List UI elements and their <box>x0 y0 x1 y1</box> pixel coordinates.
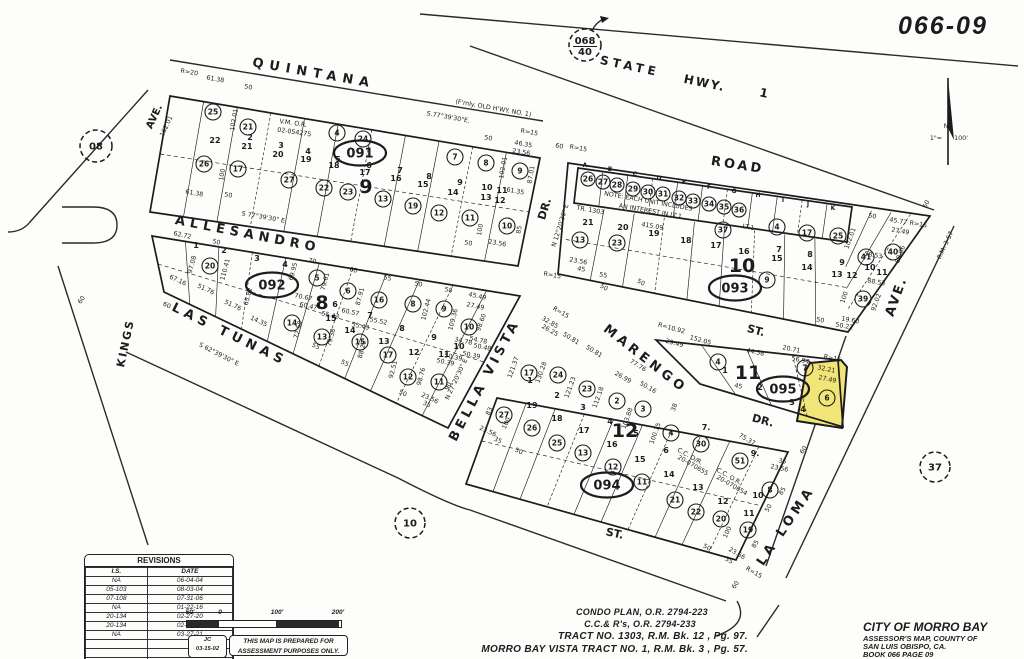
dimension-label: 70 <box>308 257 317 266</box>
revision-cell: NA <box>86 604 148 613</box>
dimension-label: 100' <box>954 135 968 142</box>
parcel-number: 23 <box>612 239 622 248</box>
scale-ticks: 50' 0 100' 200' <box>186 609 346 618</box>
lot-number: 12 <box>494 196 505 205</box>
street-bulb <box>62 207 117 243</box>
parcel-number: 24 <box>358 135 368 144</box>
parcel-number: 8 <box>410 300 415 309</box>
note-condo-plan: CONDO PLAN, O.R. 2794-223 <box>430 607 708 617</box>
street-label: DR. <box>751 411 776 429</box>
dimension-label: 60 <box>731 580 741 591</box>
lot-number: 3 <box>254 254 260 263</box>
dimension-label: 1"= <box>930 135 942 142</box>
parcel-number: 9 <box>764 276 769 285</box>
parcel-number: 9 <box>441 305 446 314</box>
parcel-number: 4 <box>715 358 720 367</box>
street-label: QUINTANA <box>251 55 376 91</box>
adjacent-page-ref: 068 <box>575 36 596 47</box>
parcel-number: 8 <box>483 159 488 168</box>
parcel-number: 2 <box>614 397 619 406</box>
parcel-number: 37 <box>718 226 728 235</box>
scale-bar-graphic <box>186 620 342 628</box>
scale-tick-100: 100' <box>271 609 283 616</box>
parcel-number: 6 <box>824 394 829 403</box>
dimension-label: 55 <box>599 271 608 279</box>
dimension-label: 45.77 <box>889 217 908 227</box>
dimension-label: 23.56 <box>512 148 531 158</box>
parcel-number: 13 <box>317 333 327 342</box>
parcel-number: 17 <box>383 351 393 360</box>
dimension-label: 55 <box>311 342 321 352</box>
dimension-label: R=15 <box>569 144 588 154</box>
lot-number: 10 <box>481 183 493 192</box>
dimension-label: 50 <box>816 316 825 324</box>
dimension-label: 50.81 <box>584 344 603 359</box>
lot-number: 18 <box>680 236 692 245</box>
unit-letter: B <box>608 166 613 173</box>
lot-number: 12 <box>846 271 857 280</box>
revision-row: 05-10308-03-04 <box>86 586 233 595</box>
lot-number: 13 <box>831 270 842 279</box>
street-label: LA LOMA <box>754 483 818 568</box>
parcel-number: 29 <box>628 185 638 194</box>
lot-number: 1 <box>722 366 728 375</box>
revision-cell: 08-03-04 <box>147 586 232 595</box>
assessor-map-page: QUINTANASTATEHWY.1ROADALLESANDROLAS TUNA… <box>0 0 1024 659</box>
block-outline <box>150 96 540 266</box>
lot-number: 2 <box>221 246 227 255</box>
dimension-label: R=20 <box>180 68 199 78</box>
block-page-number: 091 <box>346 147 373 162</box>
lot-number: 16 <box>390 174 402 183</box>
dimension-label: 50 <box>764 503 774 513</box>
parcel-number: 33 <box>688 197 698 206</box>
dimension-label: 60.57 <box>341 307 360 318</box>
lot-number: 18 <box>328 161 340 170</box>
dimension-label: 102.01 <box>229 108 240 131</box>
unit-letter: C <box>633 171 638 178</box>
dimension-label: 110.41 <box>219 258 231 281</box>
street-label: DR. <box>535 197 554 222</box>
dimension-label: 79.61 <box>320 272 331 291</box>
parcel-number: 27 <box>598 178 608 187</box>
parcel-number: 10 <box>464 323 474 332</box>
dimension-label: 87.91 <box>355 287 366 306</box>
unit-letter: J <box>806 201 809 208</box>
parcel-number: 26 <box>199 160 209 169</box>
dimension-label: 55 <box>383 274 392 283</box>
parcel-number: 15 <box>355 338 365 347</box>
lot-number: 8 <box>807 250 813 259</box>
lot-number: 20 <box>272 150 284 159</box>
dimension-label: 109.36 <box>447 308 459 331</box>
block-page-number: 093 <box>721 282 748 297</box>
parcel-number: 16 <box>374 296 384 305</box>
parcel-number: 4 <box>774 223 779 232</box>
north-arrow <box>948 78 954 165</box>
dimension-label: 23.56 <box>770 463 789 474</box>
page-number: 066-09 <box>898 12 1018 41</box>
revision-cell <box>86 649 148 658</box>
lot-number: 7 <box>367 311 373 320</box>
lot-number: 14 <box>663 470 675 479</box>
dimension-label: 97.08 <box>187 255 198 274</box>
parcel-number: 32 <box>674 194 684 203</box>
street-label: HWY. <box>683 72 728 95</box>
parcel-number: 24 <box>553 371 563 380</box>
lot-number: 20 <box>617 223 629 232</box>
parcel-number: 25 <box>833 232 843 241</box>
dimension-label: 92.02 <box>870 293 883 312</box>
parcel-number: 19 <box>408 202 418 211</box>
parcel-number: 3 <box>640 405 645 414</box>
dimension-label: 98.76 <box>416 367 427 386</box>
dimension-label: 50 <box>398 389 408 399</box>
parcel-number: 34 <box>704 200 714 209</box>
dimension-label: 27.49 <box>466 301 485 312</box>
unit-letter: E <box>682 179 686 186</box>
block-page-number: 092 <box>258 279 285 294</box>
unit-letter: K <box>831 205 836 212</box>
dimension-label: 50.48 <box>473 342 492 353</box>
dimension-label: 67.16 <box>168 274 187 288</box>
kings-ave-lower-edge <box>58 266 148 545</box>
revision-cell <box>86 640 148 649</box>
lot-number: 9 <box>431 333 437 342</box>
lot-line <box>384 135 405 246</box>
parcel-number: 20 <box>716 515 726 524</box>
dimension-label: 85 <box>778 486 788 496</box>
dimension-label: LT.1 <box>742 223 755 232</box>
lot-number: 4 <box>282 260 288 269</box>
lot-number: 12 <box>717 497 728 506</box>
dimension-label: N <box>944 123 949 130</box>
lot-number: 17 <box>578 426 589 435</box>
parcel-number: 13 <box>378 195 388 204</box>
lot-number: 19 <box>300 155 312 164</box>
lot-number: 12 <box>408 348 419 357</box>
dimension-label: 38 <box>670 403 679 413</box>
dimension-label: 27.49 <box>891 227 910 237</box>
lot-line <box>822 203 827 238</box>
note-tract-1303: TRACT NO. 1303, R.M. Bk. 12 , Pg. 97. <box>430 631 748 642</box>
street-label: ST. <box>605 525 625 541</box>
dimension-label: 50 <box>244 83 253 91</box>
lot-number: 15 <box>417 180 429 189</box>
block-number: 8 <box>315 292 328 314</box>
revision-cell: 06-04-04 <box>147 577 232 586</box>
parcel-number: 6 <box>345 287 350 296</box>
note-leader-line <box>757 605 779 637</box>
revision-cell: 07-31-06 <box>147 595 232 604</box>
lot-number: 17 <box>710 241 721 250</box>
parcel-number: 5 <box>314 274 319 283</box>
lot-number: 15 <box>325 314 337 323</box>
dimension-label: 35 <box>724 556 734 566</box>
lot-line <box>267 258 286 342</box>
dimension-label: 23.56 <box>488 239 507 249</box>
dimension-label: 50.16 <box>638 380 657 395</box>
note-morro-bay-vista-tract: MORRO BAY VISTA TRACT NO. 1, R.M. Bk. 3 … <box>400 644 748 655</box>
dimension-label: 102.01 <box>498 156 509 179</box>
lot-number: 15 <box>771 254 783 263</box>
lot-number: 21 <box>241 142 253 151</box>
dimension-label: 45 <box>577 265 586 273</box>
parcel-number: 27 <box>499 411 509 420</box>
lot-line <box>748 193 753 228</box>
scale-bar: 50' 0 100' 200' <box>186 609 346 628</box>
parcel-number: 25 <box>208 108 218 117</box>
adjacent-page-ref: 40 <box>578 47 592 58</box>
dimension-label: 121.23 <box>564 376 578 399</box>
dimension-label: 60 <box>162 301 172 311</box>
parcel-number: 8 <box>767 486 772 495</box>
dimension-label: 20.71 <box>782 344 801 355</box>
parcel-number: 9 <box>517 167 522 176</box>
dimension-label: 100 <box>722 525 733 539</box>
lot-number: 19 <box>526 401 538 410</box>
footer-city: CITY OF MORRO BAY <box>863 620 987 634</box>
revision-cell: 20-134 <box>86 622 148 631</box>
parcel-number: 31 <box>658 190 668 199</box>
scale-tick-50: 50' <box>186 609 195 616</box>
dimension-label: 26.99 <box>613 370 632 385</box>
street-label: 1 <box>758 85 769 100</box>
lot-number: 13 <box>692 483 703 492</box>
dimension-label: 100.15 <box>649 422 663 445</box>
dimension-label: 50 <box>484 134 493 142</box>
parcel-number: 12 <box>434 209 444 218</box>
dimension-label: 60 <box>349 266 358 275</box>
dimension-label: 51.76 <box>223 299 242 313</box>
parcel-number: 12 <box>403 373 413 382</box>
parcel-number: 7 <box>452 153 457 162</box>
lot-number: 9. <box>751 449 760 458</box>
lot-number: 8 <box>426 172 432 181</box>
dimension-label: 85 <box>751 539 761 549</box>
adjacent-page-ref: 08 <box>89 142 103 153</box>
parcel-number: 30 <box>643 188 653 197</box>
lot-number: 7 <box>776 245 782 254</box>
lot-number: 9 <box>457 178 463 187</box>
lot-number: 4 <box>800 405 806 414</box>
parcel-number: 13 <box>575 236 585 245</box>
scale-tick-200: 200' <box>332 609 344 616</box>
parcel-number: 25 <box>552 439 562 448</box>
parcel-number: 21 <box>670 496 680 505</box>
dimension-label: R=15 <box>744 565 763 580</box>
revisions-title: REVISIONS <box>85 555 233 567</box>
parcel-number: 11 <box>434 378 444 387</box>
lot-number: 21 <box>582 218 594 227</box>
lot-number: 10 <box>453 342 465 351</box>
dimension-label: 162.01 <box>159 115 175 138</box>
parcel-number: 4 <box>334 129 339 138</box>
adjacent-page-ref: 10 <box>403 519 417 530</box>
dimension-label: 29.49 <box>665 338 684 349</box>
lot-number: 8 <box>399 324 405 333</box>
dimension-label: R=10.92 <box>657 322 686 336</box>
lot-number: 14 <box>447 188 459 197</box>
lot-number: 3 <box>580 403 586 412</box>
dimension-label: 50 <box>464 239 473 247</box>
lot-number: 13 <box>378 337 389 346</box>
parcel-number: 26 <box>527 424 537 433</box>
unit-letter: G <box>732 188 737 195</box>
dimension-label: R.M. 3-57 <box>936 230 955 260</box>
unit-letter: H <box>755 192 760 199</box>
quintana-north-edge <box>170 60 543 121</box>
dimension-label: 14.35 <box>249 315 268 329</box>
lot-line <box>216 247 219 317</box>
parcel-number: 36 <box>734 206 744 215</box>
preparer-initials: JC <box>189 636 226 645</box>
dimension-label: R=15 <box>520 128 539 138</box>
block-number: 11 <box>735 362 761 384</box>
preparer-box: JC 03-15-02 <box>188 635 227 658</box>
revision-row: NA06-04-04 <box>86 577 233 586</box>
lot-number: 11 <box>743 509 755 518</box>
lot-number: 18 <box>551 414 563 423</box>
revisions-col-is: I.S. <box>86 568 148 577</box>
kings-ave-west-edge <box>8 90 148 232</box>
lot-number: 19 <box>648 229 660 238</box>
dimension-label: 60 <box>77 295 87 306</box>
street-label: ST. <box>746 322 767 339</box>
note-ccrs: C.C.& R's, O.R. 2794-233 <box>430 619 696 629</box>
lot-number: 11 <box>438 350 450 359</box>
lot-number: 9 <box>839 258 845 267</box>
revision-cell: 20-134 <box>86 613 148 622</box>
dimension-label: 102.44 <box>420 298 432 321</box>
dimension-label: S 77°39'30" E <box>241 209 286 224</box>
block-page-number: 094 <box>593 479 620 494</box>
lot-number: 22 <box>209 136 220 145</box>
parcel-number: 22 <box>691 508 701 517</box>
parcel-number: 20 <box>205 262 215 271</box>
parcel-number: 28 <box>612 181 622 190</box>
dimension-label: 61.38 <box>206 75 225 85</box>
lot-number: 2 <box>554 391 560 400</box>
footer-book-page: BOOK 066 PAGE 09 <box>863 650 933 659</box>
dimension-label: 50 <box>224 191 233 199</box>
dimension-label: 100 <box>839 291 850 305</box>
parcel-number: 12 <box>608 463 618 472</box>
dimension-label: N 12°20'30" E <box>550 203 571 248</box>
dimension-label: 35 <box>493 436 503 446</box>
parcel-number: 23 <box>582 385 592 394</box>
scale-tick-0: 0 <box>218 609 222 616</box>
parcel-number: 41 <box>861 253 871 262</box>
parcel-number: 17 <box>233 165 243 174</box>
unit-letter: D <box>657 175 662 182</box>
dimension-label: 50.81 <box>561 331 580 346</box>
dimension-label: 51.76 <box>196 283 215 297</box>
parcel-number: 35 <box>719 203 729 212</box>
lot-number: 13 <box>480 193 491 202</box>
parcel-number: 40 <box>888 248 898 257</box>
unit-letter: A <box>583 162 588 169</box>
parcel-number: 27 <box>284 176 294 185</box>
dimension-label: R=15 <box>551 305 570 320</box>
unit-letter: F <box>707 184 711 191</box>
parcel-number: 19 <box>743 526 753 535</box>
parcel-number: 21 <box>243 123 253 132</box>
parcel-number: 13 <box>578 449 588 458</box>
parcel-number: 11 <box>465 214 475 223</box>
dimension-label: 50 <box>868 212 877 220</box>
parcel-number: 51 <box>735 457 745 466</box>
street-label: KINGS <box>114 318 137 368</box>
disclaimer-box: THIS MAP IS PREPARED FOR ASSESSMENT PURP… <box>229 635 348 656</box>
ref-arrowhead-068 <box>600 16 609 23</box>
revisions-col-date: DATE <box>147 568 232 577</box>
parcel-number: 11 <box>637 478 647 487</box>
parcel-number: 7 <box>802 364 807 373</box>
lot-number: 11 <box>496 186 508 195</box>
lot-number: 3 <box>278 141 284 150</box>
parcel-number: 23 <box>343 188 353 197</box>
lot-number: 14 <box>801 263 813 272</box>
parcel-number: 10 <box>502 222 512 231</box>
dimension-label: 50 <box>514 447 524 457</box>
lot-number: 11 <box>876 268 888 277</box>
dimension-label: S.77°39'30"E. <box>426 109 471 124</box>
dimension-label: 88.53 <box>867 278 886 288</box>
dimension-label: 100 <box>476 223 485 236</box>
dimension-label: 112.18 <box>592 386 606 409</box>
street-label: AVE. <box>883 275 911 319</box>
dimension-label: 100 <box>218 168 227 181</box>
dimension-label: 85 <box>515 225 523 234</box>
parcel-number: 14 <box>287 319 297 328</box>
parcel-number: 39 <box>858 295 868 304</box>
dimension-label: R=15 <box>909 220 928 230</box>
dimension-label: 60 <box>555 142 564 150</box>
dimension-label: 61.35 <box>506 187 525 197</box>
dimension-label: 55 <box>340 359 350 369</box>
revision-cell: 07-108 <box>86 595 148 604</box>
parcel-number: 30 <box>696 440 706 449</box>
block-number: 9 <box>359 176 372 198</box>
revision-row: 07-10807-31-06 <box>86 595 233 604</box>
parcel-number: 17 <box>524 369 534 378</box>
revision-cell: NA <box>86 577 148 586</box>
lot-line <box>418 141 439 251</box>
dimension-label: 61.38 <box>185 189 204 199</box>
revision-cell: 05-103 <box>86 586 148 595</box>
street-label: ROAD <box>710 154 765 177</box>
lot-number: 6 <box>663 446 669 455</box>
preparer-date: 03-15-02 <box>189 645 226 654</box>
dimension-label: 45.49 <box>468 291 487 302</box>
dimension-label: 121.37 <box>507 356 521 379</box>
adjacent-page-ref: 37 <box>928 463 942 474</box>
dimension-label: 50 <box>444 286 453 295</box>
parcel-number: 26 <box>583 175 593 184</box>
dimension-label: 44.58 <box>746 347 765 358</box>
street-label: STATE <box>599 53 661 79</box>
lot-number: 1 <box>193 241 199 250</box>
dimension-label: 50 <box>414 280 423 289</box>
parcel-number: 4 <box>668 429 673 438</box>
parcel-number: 17 <box>802 229 812 238</box>
unit-letter: I <box>782 197 784 204</box>
lot-number: 14 <box>344 326 356 335</box>
lot-number: 15 <box>634 455 646 464</box>
block-number: 12 <box>612 420 638 442</box>
lot-number: 6 <box>332 300 338 309</box>
